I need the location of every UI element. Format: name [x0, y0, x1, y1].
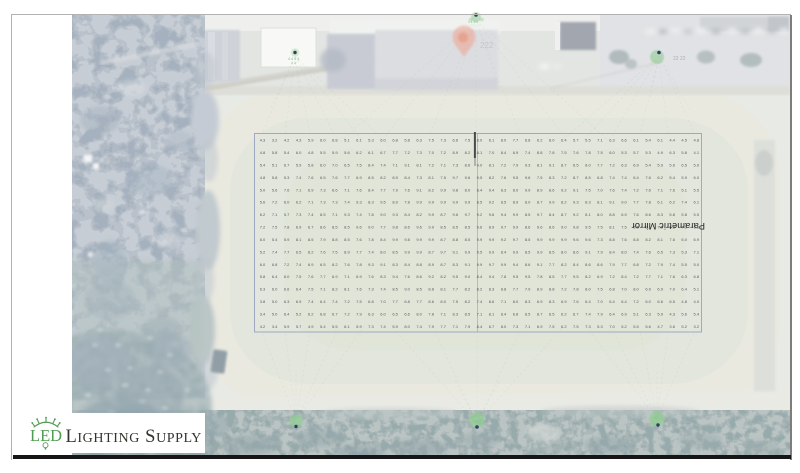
svg-text:8.5: 8.5 [549, 249, 555, 254]
svg-text:9.2: 9.2 [501, 237, 507, 242]
svg-text:8.0: 8.0 [597, 212, 603, 217]
svg-text:6.2: 6.2 [260, 212, 266, 217]
svg-text:6.4: 6.4 [621, 299, 627, 304]
svg-text:8.1: 8.1 [344, 287, 350, 292]
svg-text:8.7: 8.7 [537, 312, 543, 317]
svg-text:9.9: 9.9 [428, 212, 434, 217]
svg-text:8.3: 8.3 [585, 200, 591, 205]
svg-text:8.4: 8.4 [477, 187, 483, 192]
svg-text:8.5: 8.5 [465, 237, 471, 242]
svg-text:6.5: 6.5 [573, 162, 579, 167]
svg-text:4.8: 4.8 [308, 150, 314, 155]
svg-text:6.3: 6.3 [645, 312, 651, 317]
svg-text:7.5: 7.5 [537, 175, 543, 180]
svg-text:9.9: 9.9 [404, 249, 410, 254]
svg-text:7.1: 7.1 [344, 274, 350, 279]
svg-text:6.4: 6.4 [561, 138, 567, 143]
svg-text:8.5: 8.5 [525, 312, 531, 317]
svg-text:8.9: 8.9 [489, 225, 495, 230]
svg-text:6.2: 6.2 [657, 175, 663, 180]
svg-text:6.8: 6.8 [404, 299, 410, 304]
svg-text:6.4: 6.4 [609, 312, 615, 317]
svg-text:6.3: 6.3 [621, 162, 627, 167]
svg-text:6.1: 6.1 [633, 138, 639, 143]
svg-text:8.6: 8.6 [404, 225, 410, 230]
svg-text:9.9: 9.9 [513, 249, 519, 254]
svg-text:8.6: 8.6 [320, 225, 326, 230]
svg-text:9.4: 9.4 [392, 274, 398, 279]
svg-text:9.6: 9.6 [453, 212, 459, 217]
svg-text:7.9: 7.9 [428, 324, 434, 329]
svg-text:9.9: 9.9 [465, 249, 471, 254]
svg-text:8.4: 8.4 [368, 187, 374, 192]
svg-text:7.4: 7.4 [308, 299, 314, 304]
svg-text:6.9: 6.9 [597, 274, 603, 279]
svg-text:8.0: 8.0 [440, 299, 446, 304]
svg-text:6.9: 6.9 [621, 212, 627, 217]
svg-text:7.4: 7.4 [296, 175, 302, 180]
svg-text:6.1: 6.1 [657, 138, 663, 143]
svg-text:4 4: 4 4 [291, 62, 296, 66]
svg-text:9.3: 9.3 [356, 200, 362, 205]
svg-text:9.5: 9.5 [513, 175, 519, 180]
svg-text:7.1: 7.1 [477, 312, 483, 317]
svg-text:6.8: 6.8 [272, 262, 278, 267]
svg-text:8.4: 8.4 [501, 312, 507, 317]
svg-text:8.0: 8.0 [416, 312, 422, 317]
svg-text:9.1: 9.1 [453, 249, 459, 254]
svg-text:8.5: 8.5 [416, 287, 422, 292]
svg-text:9.3: 9.3 [525, 162, 531, 167]
svg-text:6.0: 6.0 [694, 175, 700, 180]
svg-text:7.3: 7.3 [320, 200, 326, 205]
svg-text:5.4: 5.4 [645, 138, 651, 143]
svg-text:7.1: 7.1 [453, 324, 459, 329]
svg-text:5.0: 5.0 [260, 187, 266, 192]
svg-text:9.8: 9.8 [573, 225, 579, 230]
svg-text:7.9: 7.9 [320, 237, 326, 242]
svg-text:6.6: 6.6 [404, 312, 410, 317]
svg-text:6.7: 6.7 [489, 324, 495, 329]
svg-text:7.6: 7.6 [573, 150, 579, 155]
svg-text:7.5: 7.5 [332, 249, 338, 254]
svg-text:7.4: 7.4 [296, 262, 302, 267]
svg-text:9.1: 9.1 [404, 162, 410, 167]
svg-text:8.5: 8.5 [525, 249, 531, 254]
svg-text:5.9: 5.9 [392, 324, 398, 329]
svg-text:8.2: 8.2 [561, 262, 567, 267]
svg-text:6.5: 6.5 [669, 299, 675, 304]
svg-text:6.5: 6.5 [344, 162, 350, 167]
svg-text:7.3: 7.3 [416, 175, 422, 180]
svg-text:9.8: 9.8 [404, 237, 410, 242]
svg-text:7.4: 7.4 [669, 262, 675, 267]
svg-text:7.9: 7.9 [465, 324, 471, 329]
svg-text:8.5: 8.5 [501, 200, 507, 205]
svg-text:7.8: 7.8 [645, 200, 651, 205]
svg-text:9.9: 9.9 [416, 249, 422, 254]
svg-text:7.2: 7.2 [260, 225, 266, 230]
svg-text:8.6: 8.6 [525, 262, 531, 267]
svg-text:6.2: 6.2 [356, 150, 362, 155]
svg-text:8.0: 8.0 [585, 287, 591, 292]
svg-text:8.3: 8.3 [380, 274, 386, 279]
svg-text:7.5: 7.5 [308, 287, 314, 292]
svg-text:5.3: 5.3 [621, 150, 627, 155]
svg-text:8.0: 8.0 [477, 138, 483, 143]
svg-text:6.6: 6.6 [657, 299, 663, 304]
svg-text:4.9: 4.9 [308, 324, 314, 329]
svg-text:6.1: 6.1 [694, 200, 700, 205]
svg-text:6.0: 6.0 [380, 312, 386, 317]
svg-text:8.2: 8.2 [465, 287, 471, 292]
svg-text:6.4: 6.4 [681, 287, 687, 292]
svg-text:8.8: 8.8 [633, 237, 639, 242]
svg-text:7.3: 7.3 [332, 200, 338, 205]
svg-text:8.1: 8.1 [428, 175, 434, 180]
svg-text:5.5: 5.5 [694, 212, 700, 217]
svg-text:5.1: 5.1 [681, 187, 687, 192]
svg-text:9.1: 9.1 [465, 262, 471, 267]
svg-text:9.9: 9.9 [489, 249, 495, 254]
svg-text:4 4 4 4: 4 4 4 4 [468, 20, 478, 24]
svg-text:8.4: 8.4 [404, 175, 410, 180]
svg-text:9.1: 9.1 [416, 187, 422, 192]
svg-text:7.1: 7.1 [525, 324, 531, 329]
svg-text:7.4: 7.4 [621, 187, 627, 192]
svg-text:4.7: 4.7 [657, 324, 663, 329]
svg-text:7.9: 7.9 [356, 312, 362, 317]
svg-text:5.4: 5.4 [284, 150, 290, 155]
svg-text:9.9: 9.9 [453, 200, 459, 205]
svg-text:7.4: 7.4 [380, 324, 386, 329]
svg-text:5.5: 5.5 [633, 324, 639, 329]
svg-text:8.0: 8.0 [501, 324, 507, 329]
svg-text:22 22: 22 22 [673, 56, 686, 62]
svg-text:5.8: 5.8 [272, 175, 278, 180]
svg-text:6.9: 6.9 [621, 312, 627, 317]
svg-text:5.5: 5.5 [694, 187, 700, 192]
svg-text:9.2: 9.2 [489, 200, 495, 205]
svg-text:8.9: 8.9 [453, 150, 459, 155]
svg-text:6.4: 6.4 [320, 299, 326, 304]
svg-text:7.1: 7.1 [332, 212, 338, 217]
svg-text:7.4: 7.4 [368, 249, 374, 254]
svg-text:8.6: 8.6 [597, 262, 603, 267]
svg-text:4.9: 4.9 [657, 150, 663, 155]
svg-text:3.2: 3.2 [272, 138, 278, 143]
svg-text:8.5: 8.5 [440, 225, 446, 230]
svg-text:4 4 4 4: 4 4 4 4 [288, 57, 299, 61]
svg-text:8.0: 8.0 [525, 200, 531, 205]
svg-text:8.8: 8.8 [609, 237, 615, 242]
svg-text:6.8: 6.8 [513, 312, 519, 317]
svg-text:8.9: 8.9 [428, 262, 434, 267]
svg-text:6.9: 6.9 [537, 299, 543, 304]
svg-text:8.0: 8.0 [513, 299, 519, 304]
svg-text:4.8: 4.8 [260, 150, 266, 155]
svg-text:9.9: 9.9 [428, 225, 434, 230]
svg-text:7.6: 7.6 [645, 175, 651, 180]
svg-text:9.9: 9.9 [416, 237, 422, 242]
svg-text:9.5: 9.5 [585, 225, 591, 230]
svg-text:5.2: 5.2 [621, 324, 627, 329]
svg-text:8.1: 8.1 [416, 162, 422, 167]
svg-text:6.1: 6.1 [344, 324, 350, 329]
svg-text:6.0: 6.0 [284, 274, 290, 279]
svg-text:8.1: 8.1 [296, 237, 302, 242]
svg-text:7.7: 7.7 [513, 138, 519, 143]
svg-text:7.6: 7.6 [356, 287, 362, 292]
svg-text:7.2: 7.2 [501, 162, 507, 167]
svg-text:8.0: 8.0 [513, 187, 519, 192]
svg-text:7.3: 7.3 [453, 162, 459, 167]
svg-text:7.5: 7.5 [549, 324, 555, 329]
svg-text:7.6: 7.6 [284, 187, 290, 192]
svg-text:6.0: 6.0 [272, 287, 278, 292]
svg-text:6.5: 6.5 [392, 312, 398, 317]
svg-text:6.1: 6.1 [356, 138, 362, 143]
svg-text:6.8: 6.8 [633, 262, 639, 267]
svg-text:5.9: 5.9 [657, 162, 663, 167]
svg-text:7.4: 7.4 [272, 249, 278, 254]
svg-text:6.7: 6.7 [573, 312, 579, 317]
svg-text:7.5: 7.5 [272, 225, 278, 230]
svg-text:8.4: 8.4 [501, 150, 507, 155]
svg-text:9.5: 9.5 [477, 175, 483, 180]
svg-text:8.5: 8.5 [477, 200, 483, 205]
svg-text:7.1: 7.1 [597, 138, 603, 143]
svg-text:8.5: 8.5 [453, 225, 459, 230]
svg-text:9.9: 9.9 [513, 225, 519, 230]
svg-text:8.4: 8.4 [501, 249, 507, 254]
svg-text:8.2: 8.2 [465, 150, 471, 155]
svg-text:7.6: 7.6 [344, 262, 350, 267]
svg-text:9.9: 9.9 [537, 249, 543, 254]
svg-text:8.5: 8.5 [332, 225, 338, 230]
svg-text:7.2: 7.2 [344, 312, 350, 317]
svg-text:4.8: 4.8 [681, 299, 687, 304]
svg-text:7.4: 7.4 [380, 287, 386, 292]
svg-text:9.4: 9.4 [489, 187, 495, 192]
svg-text:5.8: 5.8 [308, 162, 314, 167]
svg-text:6.7: 6.7 [308, 225, 314, 230]
svg-text:5.1: 5.1 [272, 162, 278, 167]
svg-text:9.7: 9.7 [501, 225, 507, 230]
svg-text:6.9: 6.9 [308, 262, 314, 267]
svg-text:6.4: 6.4 [296, 287, 302, 292]
svg-text:7.6: 7.6 [645, 249, 651, 254]
svg-text:7.4: 7.4 [525, 150, 531, 155]
svg-text:6.8: 6.8 [320, 312, 326, 317]
svg-text:9.7: 9.7 [453, 175, 459, 180]
svg-text:5.8: 5.8 [272, 150, 278, 155]
svg-text:7.7: 7.7 [513, 287, 519, 292]
svg-text:6.8: 6.8 [332, 138, 338, 143]
svg-text:9.3: 9.3 [392, 212, 398, 217]
svg-text:9.6: 9.6 [585, 237, 591, 242]
svg-text:7.8: 7.8 [368, 212, 374, 217]
svg-text:4.2: 4.2 [284, 138, 290, 143]
svg-text:9.7: 9.7 [489, 262, 495, 267]
svg-text:6.3: 6.3 [260, 287, 266, 292]
svg-text:7.6: 7.6 [669, 237, 675, 242]
svg-text:7.7: 7.7 [380, 225, 386, 230]
svg-text:222: 222 [480, 41, 494, 50]
svg-text:7.2: 7.2 [561, 175, 567, 180]
svg-text:8.3: 8.3 [525, 299, 531, 304]
svg-text:9.0: 9.0 [621, 200, 627, 205]
svg-text:7.2: 7.2 [609, 162, 615, 167]
svg-text:8.1: 8.1 [489, 162, 495, 167]
svg-text:8.7: 8.7 [428, 249, 434, 254]
svg-text:8.8: 8.8 [537, 150, 543, 155]
svg-text:6.0: 6.0 [609, 150, 615, 155]
svg-text:8.1: 8.1 [537, 162, 543, 167]
svg-text:5.0: 5.0 [694, 262, 700, 267]
svg-text:5.1: 5.1 [633, 312, 639, 317]
svg-text:6.7: 6.7 [332, 312, 338, 317]
svg-text:6.9: 6.9 [296, 225, 302, 230]
svg-text:9.3: 9.3 [573, 200, 579, 205]
svg-text:7.2: 7.2 [272, 200, 278, 205]
svg-text:8.6: 8.6 [645, 212, 651, 217]
svg-text:6.4: 6.4 [284, 312, 290, 317]
svg-text:8.9: 8.9 [513, 200, 519, 205]
svg-text:3.2: 3.2 [694, 324, 700, 329]
svg-text:6.8: 6.8 [392, 138, 398, 143]
svg-text:8.4: 8.4 [477, 324, 483, 329]
svg-text:8.1: 8.1 [657, 237, 663, 242]
svg-text:7.0: 7.0 [380, 299, 386, 304]
svg-text:4.1: 4.1 [694, 150, 700, 155]
svg-text:6.6: 6.6 [284, 287, 290, 292]
svg-text:7.7: 7.7 [284, 249, 290, 254]
svg-text:7.4: 7.4 [308, 212, 314, 217]
svg-text:7.6: 7.6 [308, 175, 314, 180]
svg-text:8.3: 8.3 [489, 287, 495, 292]
svg-text:5.6: 5.6 [272, 187, 278, 192]
svg-text:9.9: 9.9 [513, 212, 519, 217]
svg-text:7.6: 7.6 [356, 237, 362, 242]
svg-text:7.4: 7.4 [609, 175, 615, 180]
svg-text:8.5: 8.5 [392, 287, 398, 292]
svg-text:8.9: 8.9 [392, 200, 398, 205]
svg-text:6.8: 6.8 [368, 299, 374, 304]
svg-text:5.4: 5.4 [669, 175, 675, 180]
svg-text:9.9: 9.9 [440, 200, 446, 205]
svg-text:7.8: 7.8 [501, 274, 507, 279]
svg-text:5.9: 5.9 [308, 138, 314, 143]
svg-text:7.8: 7.8 [573, 287, 579, 292]
svg-text:7.0: 7.0 [597, 187, 603, 192]
svg-text:6.3: 6.3 [284, 299, 290, 304]
svg-text:7.0: 7.0 [428, 150, 434, 155]
svg-text:8.5: 8.5 [465, 225, 471, 230]
svg-text:7.4: 7.4 [332, 299, 338, 304]
svg-text:6.2: 6.2 [561, 324, 567, 329]
svg-text:9.4: 9.4 [501, 212, 507, 217]
svg-text:7.2: 7.2 [344, 299, 350, 304]
svg-text:8.7: 8.7 [537, 200, 543, 205]
svg-text:8.4: 8.4 [368, 162, 374, 167]
svg-text:7.6: 7.6 [645, 187, 651, 192]
svg-text:6.3: 6.3 [609, 138, 615, 143]
svg-text:6.7: 6.7 [380, 150, 386, 155]
svg-text:8.6: 8.6 [465, 162, 471, 167]
svg-text:8.5: 8.5 [465, 312, 471, 317]
svg-text:8.2: 8.2 [416, 212, 422, 217]
svg-text:8.8: 8.8 [609, 212, 615, 217]
svg-text:8.8: 8.8 [549, 287, 555, 292]
svg-text:7.6: 7.6 [669, 187, 675, 192]
svg-text:8.5: 8.5 [392, 249, 398, 254]
svg-text:6.6: 6.6 [453, 138, 459, 143]
svg-text:8.2: 8.2 [585, 274, 591, 279]
svg-text:8.7: 8.7 [440, 212, 446, 217]
svg-text:9.3: 9.3 [344, 212, 350, 217]
svg-text:8.4: 8.4 [404, 212, 410, 217]
svg-text:9.3: 9.3 [368, 262, 374, 267]
svg-text:6.9: 6.9 [633, 162, 639, 167]
svg-text:7.2: 7.2 [404, 150, 410, 155]
svg-text:9.9: 9.9 [465, 200, 471, 205]
svg-text:7.4: 7.4 [585, 312, 591, 317]
svg-text:7.4: 7.4 [681, 200, 687, 205]
svg-text:6.4: 6.4 [272, 274, 278, 279]
svg-text:9.9: 9.9 [428, 200, 434, 205]
svg-text:8.5: 8.5 [320, 212, 326, 217]
svg-text:7.6: 7.6 [332, 175, 338, 180]
svg-text:8.9: 8.9 [537, 187, 543, 192]
svg-text:6.5: 6.5 [320, 175, 326, 180]
svg-text:8.0: 8.0 [549, 138, 555, 143]
svg-text:7.6: 7.6 [609, 187, 615, 192]
svg-text:6.5: 6.5 [657, 249, 663, 254]
svg-text:6.3: 6.3 [669, 150, 675, 155]
svg-text:8.3: 8.3 [549, 299, 555, 304]
svg-text:7.1: 7.1 [320, 287, 326, 292]
svg-text:7.8: 7.8 [585, 150, 591, 155]
svg-text:7.6: 7.6 [573, 299, 579, 304]
svg-text:8.6: 8.6 [525, 225, 531, 230]
svg-text:7.6: 7.6 [320, 249, 326, 254]
svg-text:6.2: 6.2 [537, 138, 543, 143]
svg-text:7.3: 7.3 [669, 249, 675, 254]
svg-text:7.2: 7.2 [284, 262, 290, 267]
svg-text:8.0: 8.0 [404, 324, 410, 329]
svg-text:5.4: 5.4 [260, 162, 266, 167]
svg-text:9.6: 9.6 [525, 175, 531, 180]
svg-text:7.9: 7.9 [597, 249, 603, 254]
svg-text:9.6: 9.6 [573, 237, 579, 242]
svg-text:9.9: 9.9 [428, 237, 434, 242]
svg-text:5.9: 5.9 [356, 324, 362, 329]
svg-text:8.7: 8.7 [573, 175, 579, 180]
svg-text:5.8: 5.8 [681, 212, 687, 217]
svg-text:8.0: 8.0 [633, 287, 639, 292]
svg-text:9.0: 9.0 [465, 274, 471, 279]
svg-text:6.0: 6.0 [260, 262, 266, 267]
svg-text:9.8: 9.8 [453, 187, 459, 192]
svg-text:7.1: 7.1 [296, 187, 302, 192]
svg-text:8.7: 8.7 [561, 212, 567, 217]
svg-text:4.3: 4.3 [260, 138, 266, 143]
svg-text:7.9: 7.9 [525, 287, 531, 292]
svg-text:9.8: 9.8 [392, 225, 398, 230]
svg-text:8.6: 8.6 [489, 299, 495, 304]
svg-text:7.7: 7.7 [440, 324, 446, 329]
